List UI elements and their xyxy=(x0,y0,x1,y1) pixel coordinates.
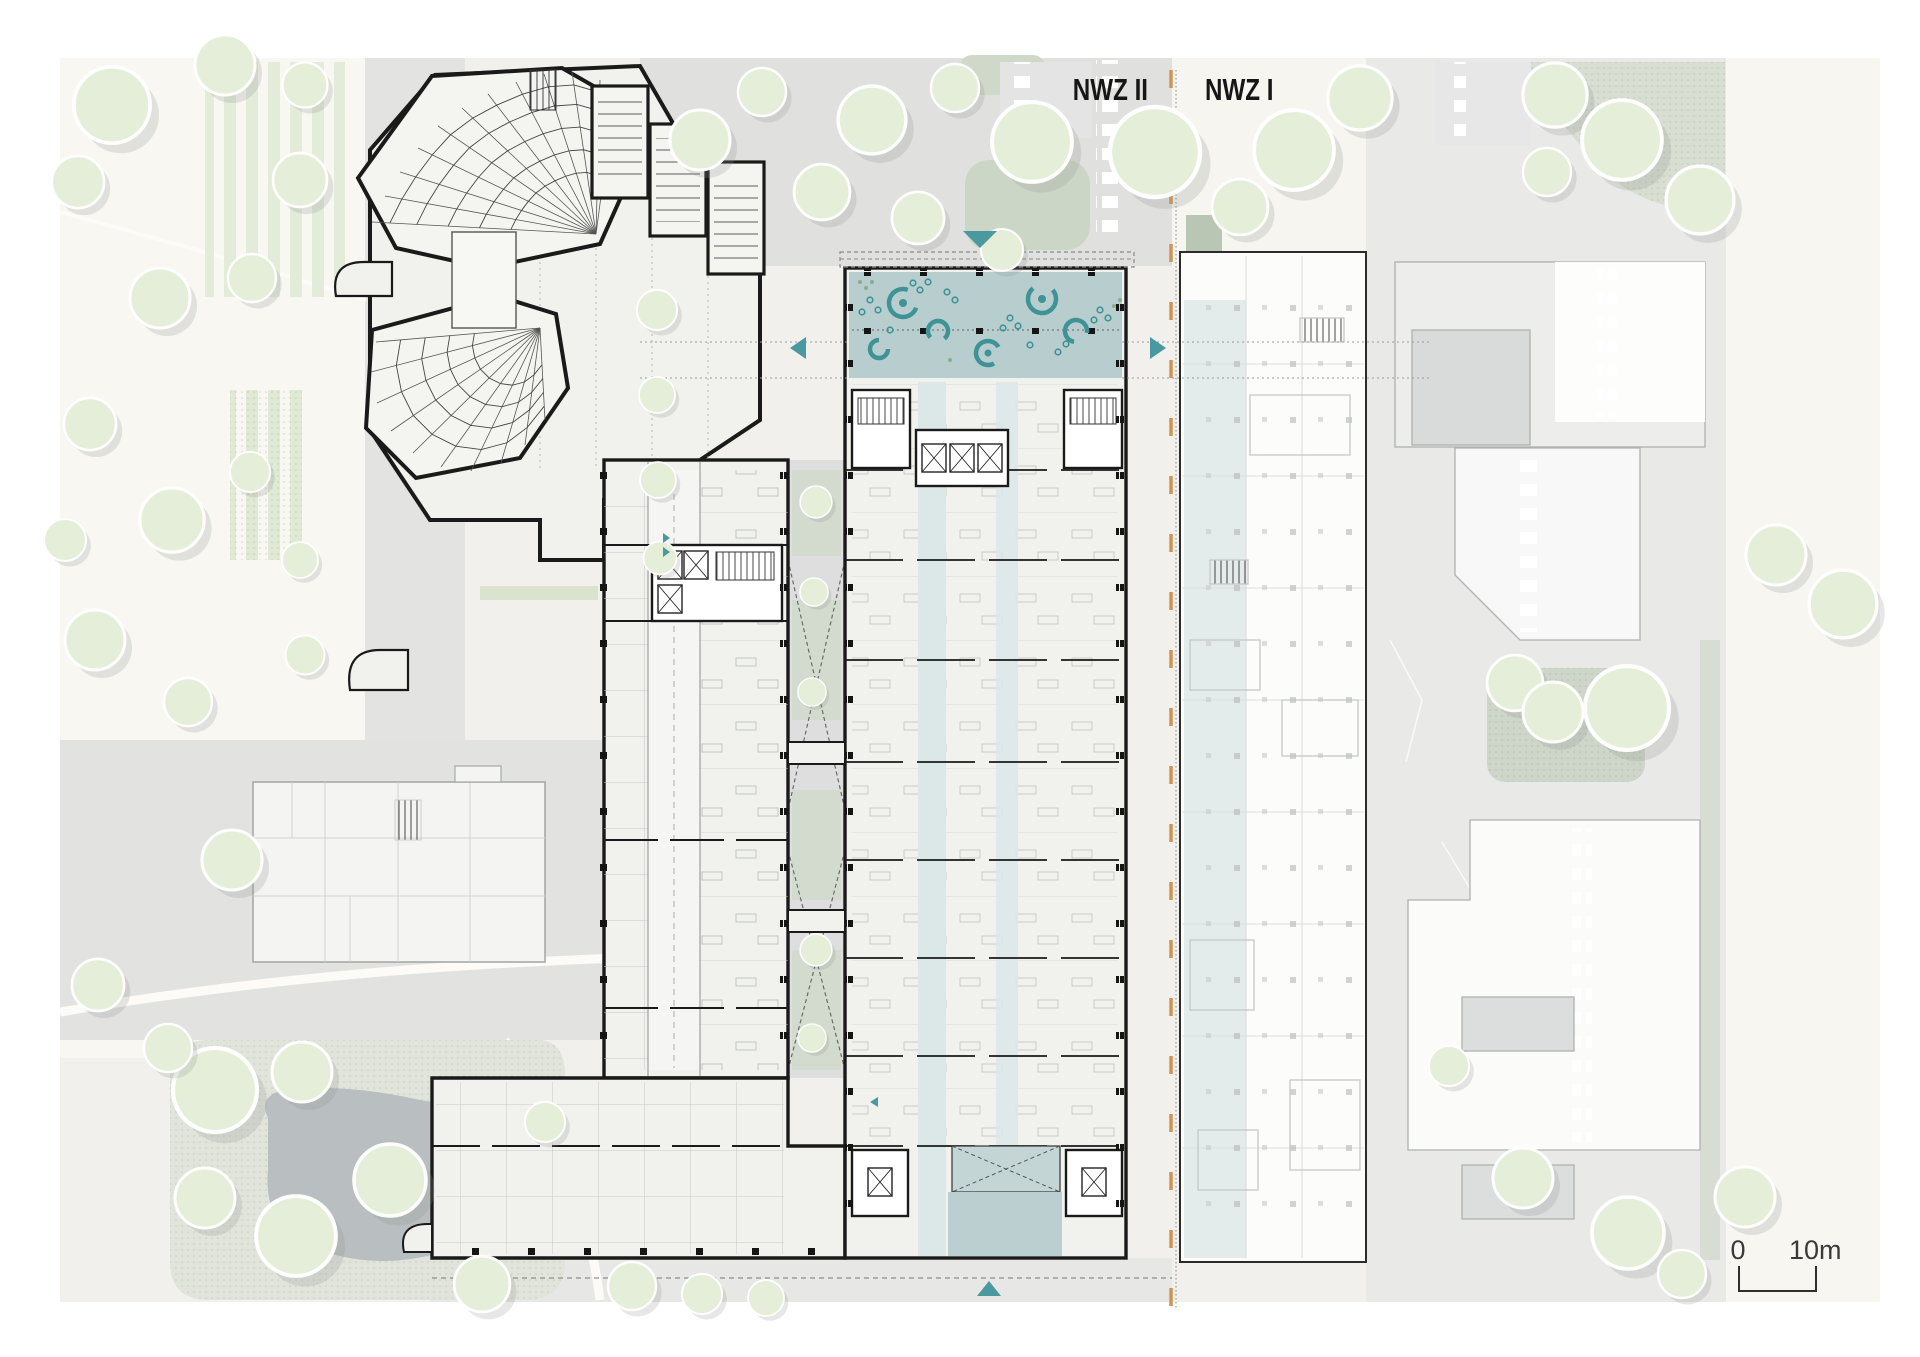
south-block-rooms xyxy=(436,1082,784,1254)
building-east-1-roof xyxy=(1555,262,1705,422)
label-nwz2: NWZ II xyxy=(1039,74,1148,105)
lab-wing-west xyxy=(600,460,788,1078)
building-north-2 xyxy=(1435,62,1531,145)
bridge-link-1 xyxy=(788,742,845,764)
scale-bar-start-label: 0 xyxy=(1724,1237,1752,1264)
office-row-west xyxy=(604,470,648,1070)
site-plan-drawing xyxy=(0,0,1920,1357)
building-west-existing xyxy=(253,766,545,962)
columns-east-wing-west xyxy=(845,276,853,1254)
building-east-5 xyxy=(1462,997,1574,1051)
seminar-hall-1-rows xyxy=(598,100,642,184)
building-nwz1 xyxy=(1180,252,1366,1262)
seminar-hall-3-rows xyxy=(714,176,758,260)
foyer-room xyxy=(452,232,516,328)
atrium xyxy=(849,272,1122,378)
scale-bar-end-label: 10m xyxy=(1789,1237,1842,1264)
columns-atrium-north xyxy=(856,268,1120,276)
building-east-3-skylights xyxy=(1520,454,1540,632)
building-east-4-skylights xyxy=(1572,828,1592,1142)
bridge-link-2 xyxy=(788,910,845,932)
columns-east-wing-east xyxy=(1116,276,1124,1254)
entrance-hall-south xyxy=(948,1146,1062,1256)
columns-east-facade xyxy=(780,464,788,1076)
building-east-1-skylights xyxy=(1597,268,1617,418)
building-east-2 xyxy=(1412,330,1530,445)
ground-east-cream xyxy=(1726,58,1880,1302)
nwz1-columns xyxy=(1186,264,1362,1254)
columns-west-facade xyxy=(600,464,608,1076)
stair-exit-west-1 xyxy=(335,262,392,296)
label-nwz1: NWZ I xyxy=(1205,74,1273,105)
stair-north xyxy=(530,70,556,110)
stair-exit-west-2 xyxy=(349,650,408,690)
courtyard xyxy=(788,460,845,1078)
lab-wing-east xyxy=(845,268,1126,1258)
hedge-strip-east xyxy=(1700,640,1720,1260)
site-plan-canvas: NWZ II NWZ I 0 10m xyxy=(0,0,1920,1357)
circulation-band-1 xyxy=(918,382,946,1256)
building-north-2-skylights xyxy=(1450,62,1466,145)
hedge-row xyxy=(480,586,598,600)
circulation-band-2 xyxy=(996,382,1018,1256)
